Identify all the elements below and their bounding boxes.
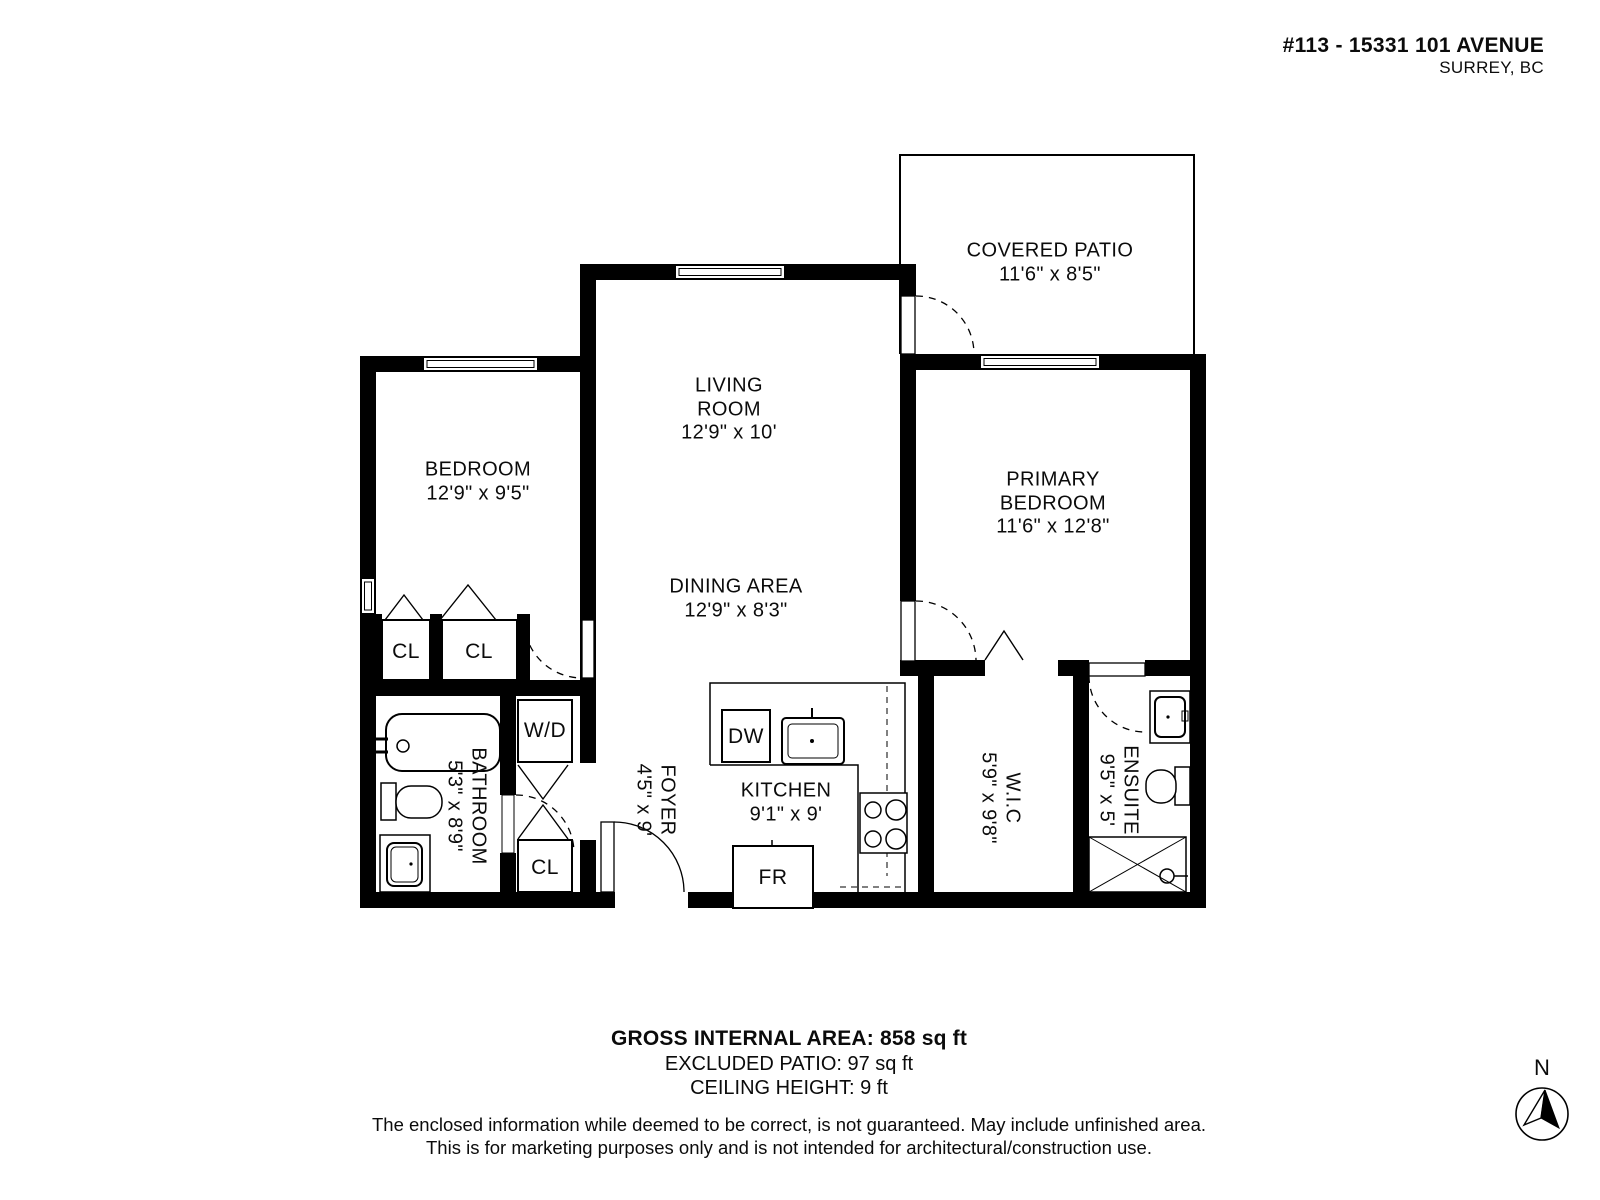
room-dims: 5'3" x 8'9" bbox=[442, 747, 466, 864]
ensuite-door-icon bbox=[1089, 663, 1145, 732]
bifold-door-icon bbox=[985, 631, 1023, 660]
room-label-primary-bedroom: PRIMARY BEDROOM 11'6" x 12'8" bbox=[963, 469, 1143, 540]
property-address: #113 - 15331 101 AVENUE SURREY, BC bbox=[1283, 34, 1544, 78]
bedroom-window-icon bbox=[423, 357, 538, 371]
patio-door-icon bbox=[901, 296, 974, 354]
room-name: COVERED PATIO bbox=[965, 239, 1135, 263]
room-label-kitchen: KITCHEN 9'1" x 9' bbox=[686, 779, 886, 826]
north-label: N bbox=[1534, 1055, 1550, 1081]
room-label-living-room: LIVING ROOM 12'9" x 10' bbox=[664, 375, 794, 446]
room-name: KITCHEN bbox=[686, 779, 886, 803]
room-name: DINING AREA bbox=[666, 575, 806, 599]
living-room-window-icon bbox=[675, 265, 785, 279]
room-label-covered-patio: COVERED PATIO 11'6" x 8'5" bbox=[965, 239, 1135, 286]
room-label-ensuite: ENSUITE 9'5" x 5' bbox=[1094, 745, 1141, 834]
bathroom-sink-icon bbox=[380, 835, 430, 892]
dishwasher-label: DW bbox=[728, 725, 764, 749]
room-dims: 11'6" x 8'5" bbox=[965, 263, 1135, 287]
room-name: PRIMARY BEDROOM bbox=[963, 469, 1143, 516]
room-dims: 12'9" x 10' bbox=[664, 422, 794, 446]
address-line1: #113 - 15331 101 AVENUE bbox=[1283, 34, 1544, 58]
ensuite-toilet-icon bbox=[1146, 767, 1190, 805]
area-summary: GROSS INTERNAL AREA: 858 sq ft EXCLUDED … bbox=[0, 1026, 1578, 1100]
bifold-door-icon bbox=[385, 595, 423, 620]
disclaimer: The enclosed information while deemed to… bbox=[0, 1114, 1578, 1160]
room-name: W.I.C bbox=[1000, 752, 1024, 844]
toilet-icon bbox=[381, 783, 442, 820]
washer-dryer-label: W/D bbox=[524, 719, 566, 743]
disclaimer-line2: This is for marketing purposes only and … bbox=[0, 1137, 1578, 1160]
room-dims: 12'9" x 9'5" bbox=[368, 482, 588, 506]
floorplan-page: #113 - 15331 101 AVENUE SURREY, BC COVER… bbox=[0, 0, 1600, 1200]
bifold-door-icon bbox=[440, 585, 496, 620]
bifold-door-icon bbox=[518, 805, 568, 839]
room-name: ENSUITE bbox=[1118, 745, 1142, 834]
room-dims: 12'9" x 8'3" bbox=[666, 599, 806, 623]
disclaimer-line1: The enclosed information while deemed to… bbox=[0, 1114, 1578, 1137]
room-name: BATHROOM bbox=[466, 747, 490, 864]
room-dims: 9'5" x 5' bbox=[1094, 745, 1118, 834]
room-dims: 9'1" x 9' bbox=[686, 803, 886, 827]
ceiling-height-line: CEILING HEIGHT: 9 ft bbox=[0, 1076, 1578, 1100]
room-label-bathroom: BATHROOM 5'3" x 8'9" bbox=[442, 747, 489, 864]
gross-area-line: GROSS INTERNAL AREA: 858 sq ft bbox=[0, 1026, 1578, 1052]
room-name: FOYER bbox=[655, 764, 679, 837]
closet-label: CL bbox=[392, 640, 420, 664]
address-line2: SURREY, BC bbox=[1283, 58, 1544, 78]
room-label-bedroom: BEDROOM 12'9" x 9'5" bbox=[368, 458, 588, 505]
fridge-label: FR bbox=[759, 866, 788, 890]
room-label-foyer: FOYER 4'5" x 9' bbox=[631, 764, 678, 837]
excluded-patio-line: EXCLUDED PATIO: 97 sq ft bbox=[0, 1052, 1578, 1076]
kitchen-sink-icon bbox=[782, 708, 844, 764]
room-dims: 11'6" x 12'8" bbox=[963, 516, 1143, 540]
room-label-wic: W.I.C 5'9" x 9'8" bbox=[976, 752, 1023, 844]
bedroom-door-icon bbox=[524, 620, 594, 678]
closet-label: CL bbox=[465, 640, 493, 664]
primary-bedroom-window-icon bbox=[980, 355, 1100, 369]
ensuite-sink-icon bbox=[1150, 691, 1190, 743]
room-label-dining-area: DINING AREA 12'9" x 8'3" bbox=[666, 575, 806, 622]
primary-bedroom-door-icon bbox=[901, 601, 976, 661]
room-name: LIVING ROOM bbox=[664, 375, 794, 422]
room-dims: 4'5" x 9' bbox=[631, 764, 655, 837]
room-name: BEDROOM bbox=[368, 458, 588, 482]
bedroom-side-window-icon bbox=[361, 578, 375, 614]
bifold-door-icon bbox=[518, 765, 568, 799]
room-dims: 5'9" x 9'8" bbox=[976, 752, 1000, 844]
shower-icon bbox=[1089, 837, 1188, 892]
closet-label: CL bbox=[531, 856, 559, 880]
